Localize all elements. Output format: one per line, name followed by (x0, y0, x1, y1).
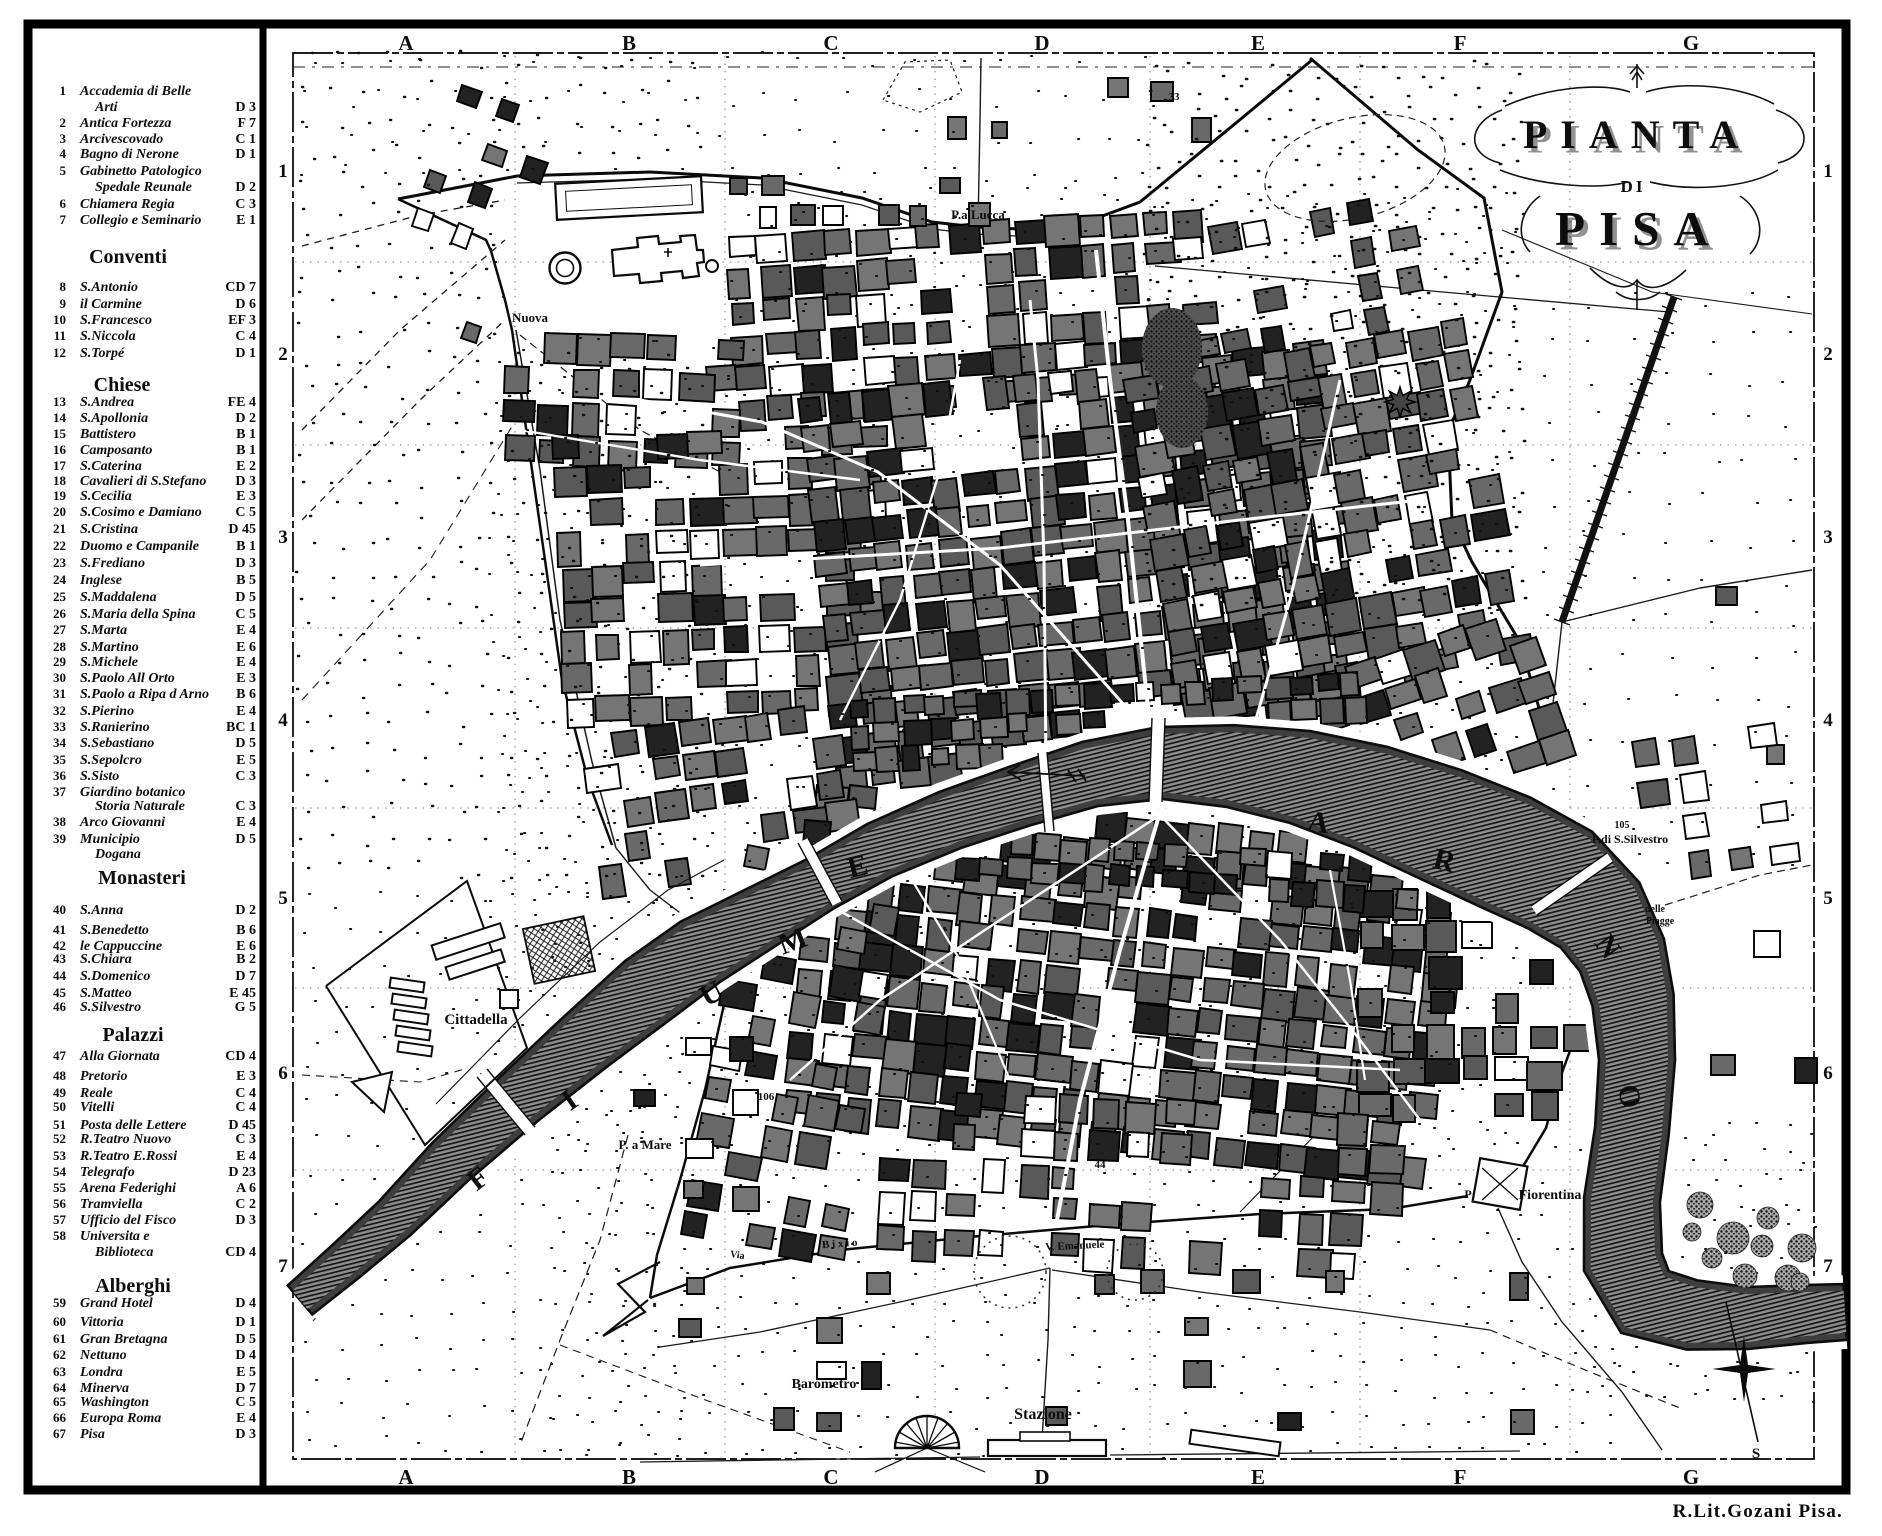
svg-text:D: D (1034, 1465, 1049, 1489)
svg-text:Antica Fortezza: Antica Fortezza (79, 116, 171, 131)
svg-text:E 6: E 6 (236, 640, 256, 655)
svg-text:Vitelli: Vitelli (80, 1100, 114, 1115)
svg-text:P.a Lucca: P.a Lucca (951, 207, 1005, 222)
svg-text:C 3: C 3 (235, 769, 256, 784)
svg-text:Biblioteca: Biblioteca (94, 1245, 153, 1260)
svg-text:28: 28 (53, 639, 67, 654)
svg-text:D 2: D 2 (235, 411, 256, 426)
svg-text:4: 4 (60, 146, 67, 161)
svg-text:14: 14 (53, 410, 67, 425)
svg-text:F: F (1454, 31, 1467, 55)
svg-text:C 4: C 4 (235, 329, 256, 344)
svg-text:S.Maddalena: S.Maddalena (80, 590, 157, 605)
svg-text:13: 13 (53, 394, 67, 409)
svg-text:52: 52 (53, 1131, 66, 1146)
svg-text:Arena Federighi: Arena Federighi (79, 1181, 176, 1196)
svg-text:Cavalieri di S.Stefano: Cavalieri di S.Stefano (80, 474, 206, 489)
svg-text:D 5: D 5 (235, 1332, 256, 1347)
svg-text:Alla Giornata: Alla Giornata (79, 1049, 160, 1064)
svg-text:S.Sisto: S.Sisto (80, 769, 119, 784)
svg-text:Stazione: Stazione (1014, 1406, 1072, 1423)
svg-text:25: 25 (53, 589, 67, 604)
svg-text:Bagno di Nerone: Bagno di Nerone (79, 147, 179, 162)
svg-text:17: 17 (53, 458, 67, 473)
svg-text:67: 67 (53, 1426, 67, 1441)
svg-text:5: 5 (60, 163, 67, 178)
svg-text:Europa Roma: Europa Roma (79, 1411, 161, 1426)
svg-text:9: 9 (60, 296, 67, 311)
svg-text:D 6: D 6 (235, 297, 256, 312)
svg-text:S.Domenico: S.Domenico (80, 969, 150, 984)
svg-text:106: 106 (758, 1091, 775, 1103)
svg-text:Accademia di Belle: Accademia di Belle (79, 84, 191, 99)
svg-text:56: 56 (53, 1196, 67, 1211)
svg-text:60: 60 (53, 1314, 66, 1329)
svg-text:20: 20 (53, 504, 66, 519)
svg-text:S.Ranierino: S.Ranierino (80, 720, 150, 735)
svg-text:7: 7 (278, 1256, 288, 1277)
svg-text:7: 7 (1823, 1256, 1833, 1277)
svg-text:Londra: Londra (79, 1365, 123, 1380)
svg-text:Palazzi: Palazzi (102, 1024, 164, 1046)
svg-text:57: 57 (53, 1212, 67, 1227)
svg-text:G 5: G 5 (235, 1000, 256, 1015)
svg-text:S.Silvestro: S.Silvestro (80, 1000, 141, 1015)
svg-text:Washington: Washington (80, 1395, 149, 1410)
svg-text:3: 3 (278, 527, 288, 548)
svg-text:Spedale Reunale: Spedale Reunale (95, 180, 192, 195)
svg-text:S.Anna: S.Anna (80, 903, 123, 918)
svg-text:6: 6 (1823, 1063, 1833, 1084)
svg-text:55: 55 (53, 1180, 67, 1195)
svg-text:B 1: B 1 (236, 443, 256, 458)
svg-text:S.Niccola: S.Niccola (80, 329, 136, 344)
svg-text:S.Paolo All Orto: S.Paolo All Orto (80, 671, 175, 686)
svg-text:R.Teatro E.Rossi: R.Teatro E.Rossi (79, 1149, 177, 1164)
svg-text:E 3: E 3 (236, 489, 256, 504)
svg-text:54: 54 (53, 1164, 67, 1179)
svg-text:P:: P: (1464, 1187, 1475, 1201)
svg-text:Chiese: Chiese (94, 374, 151, 396)
svg-text:S.Martino: S.Martino (80, 640, 139, 655)
svg-text:5: 5 (278, 888, 288, 909)
svg-text:3: 3 (1823, 527, 1833, 548)
svg-text:CD 4: CD 4 (225, 1245, 256, 1260)
svg-text:C: C (823, 1465, 838, 1489)
svg-text:B i x i o: B i x i o (822, 1237, 859, 1251)
svg-text:Gran Bretagna: Gran Bretagna (80, 1332, 168, 1347)
svg-text:B: B (622, 31, 636, 55)
svg-text:C 1: C 1 (235, 132, 256, 147)
svg-text:63: 63 (53, 1364, 67, 1379)
svg-text:59: 59 (53, 1295, 67, 1310)
svg-text:Dogana: Dogana (94, 847, 141, 862)
svg-text:Conventi: Conventi (89, 246, 167, 268)
svg-text:58: 58 (53, 1228, 67, 1243)
svg-text:66: 66 (53, 1410, 67, 1425)
svg-text:Alberghi: Alberghi (95, 1275, 171, 1297)
svg-text:Nettuno: Nettuno (79, 1348, 127, 1363)
svg-text:il Carmine: il Carmine (80, 297, 142, 312)
svg-text:51: 51 (53, 1117, 66, 1132)
svg-text:EF 3: EF 3 (228, 313, 256, 328)
svg-text:E 4: E 4 (236, 655, 256, 670)
svg-text:Inglese: Inglese (79, 573, 122, 588)
svg-text:12: 12 (53, 345, 66, 360)
svg-text:R.Lit.Gozani Pisa.: R.Lit.Gozani Pisa. (1673, 1501, 1843, 1522)
svg-text:Gabinetto Patologico: Gabinetto Patologico (80, 164, 202, 179)
svg-text:Giardino botanico: Giardino botanico (80, 785, 185, 800)
svg-text:53: 53 (53, 1148, 67, 1163)
svg-text:Nuova: Nuova (512, 310, 549, 325)
svg-text:D 5: D 5 (235, 590, 256, 605)
svg-text:24: 24 (53, 572, 67, 587)
svg-text:18: 18 (53, 473, 67, 488)
svg-text:30: 30 (53, 670, 66, 685)
svg-text:4: 4 (278, 710, 288, 731)
svg-text:Grand Hotel: Grand Hotel (80, 1296, 153, 1311)
svg-text:2: 2 (278, 344, 288, 365)
svg-text:Arcivescovado: Arcivescovado (79, 132, 163, 147)
svg-text:D 1: D 1 (235, 346, 256, 361)
svg-text:S.Cristina: S.Cristina (80, 522, 138, 537)
svg-text:D 3: D 3 (235, 1213, 256, 1228)
svg-text:40: 40 (53, 902, 66, 917)
svg-text:S.Francesco: S.Francesco (80, 313, 152, 328)
svg-text:S.Maria della Spina: S.Maria della Spina (80, 607, 196, 622)
svg-text:D 3: D 3 (235, 100, 256, 115)
svg-text:Pretorio: Pretorio (80, 1069, 127, 1084)
svg-text:A: A (398, 1465, 414, 1489)
svg-text:CD 7: CD 7 (225, 280, 256, 295)
svg-text:Municipio: Municipio (79, 832, 140, 847)
svg-text:Pisa: Pisa (80, 1427, 105, 1442)
svg-text:49: 49 (53, 1085, 67, 1100)
svg-text:64: 64 (53, 1380, 67, 1395)
svg-text:Universita e: Universita e (80, 1229, 150, 1244)
svg-text:S.Antonio: S.Antonio (80, 280, 138, 295)
svg-text:D 7: D 7 (235, 969, 256, 984)
svg-text:S.Caterina: S.Caterina (80, 459, 142, 474)
svg-text:G: G (1683, 31, 1699, 55)
svg-text:S.Benedetto: S.Benedetto (80, 923, 149, 938)
svg-text:S.Pierino: S.Pierino (80, 704, 134, 719)
svg-text:105: 105 (1615, 820, 1630, 831)
svg-text:delle: delle (1645, 904, 1666, 915)
svg-text:C: C (823, 31, 838, 55)
svg-text:D 3: D 3 (235, 1427, 256, 1442)
svg-text:S.Torpé: S.Torpé (80, 346, 125, 361)
svg-text:Chiamera Regia: Chiamera Regia (80, 197, 175, 212)
svg-text:1: 1 (1823, 161, 1833, 182)
svg-text:Reale: Reale (79, 1086, 113, 1101)
svg-text:Monasteri: Monasteri (98, 867, 186, 889)
svg-text:4: 4 (1823, 710, 1833, 731)
svg-text:S.Paolo a Ripa d Arno: S.Paolo a Ripa d Arno (80, 687, 209, 702)
svg-text:E 5: E 5 (236, 1365, 256, 1380)
svg-text:C 2: C 2 (235, 1197, 256, 1212)
svg-text:B 6: B 6 (236, 687, 256, 702)
svg-text:D 2: D 2 (235, 180, 256, 195)
svg-text:B 6: B 6 (236, 923, 256, 938)
svg-text:6: 6 (278, 1063, 288, 1084)
svg-text:E 45: E 45 (229, 986, 256, 1001)
svg-text:2: 2 (1823, 344, 1833, 365)
svg-text:P. a Mare: P. a Mare (618, 1137, 671, 1152)
svg-text:Battistero: Battistero (79, 427, 136, 442)
svg-text:Duomo e Campanile: Duomo e Campanile (79, 539, 199, 554)
svg-text:B 5: B 5 (236, 573, 256, 588)
svg-text:Arti: Arti (94, 100, 118, 115)
svg-text:23: 23 (53, 555, 67, 570)
svg-text:65: 65 (53, 1394, 67, 1409)
svg-text:S.Apollonia: S.Apollonia (80, 411, 148, 426)
svg-text:R.Teatro Nuovo: R.Teatro Nuovo (79, 1132, 171, 1147)
svg-text:D: D (1034, 31, 1049, 55)
svg-text:S.Chiara: S.Chiara (80, 952, 132, 967)
svg-text:19: 19 (53, 488, 67, 503)
svg-text:5: 5 (1823, 888, 1833, 909)
svg-text:D 1: D 1 (235, 147, 256, 162)
svg-text:D 2: D 2 (235, 903, 256, 918)
svg-text:Barometro: Barometro (792, 1377, 857, 1392)
svg-text:E 4: E 4 (236, 1411, 256, 1426)
svg-text:Tramviella: Tramviella (80, 1197, 142, 1212)
svg-text:C 5: C 5 (235, 505, 256, 520)
svg-text:S.Cosimo e Damiano: S.Cosimo e Damiano (80, 505, 202, 520)
svg-text:38: 38 (53, 814, 67, 829)
svg-text:22: 22 (53, 538, 66, 553)
svg-text:E: E (1251, 31, 1265, 55)
svg-text:C 3: C 3 (235, 1132, 256, 1147)
svg-text:D 45: D 45 (228, 1118, 256, 1133)
svg-text:41: 41 (53, 922, 66, 937)
svg-text:50: 50 (53, 1099, 66, 1114)
svg-text:21: 21 (53, 521, 66, 536)
svg-text:Piagge: Piagge (1646, 916, 1675, 927)
svg-text:S.Sebastiano: S.Sebastiano (80, 736, 154, 751)
svg-text:C 3: C 3 (235, 799, 256, 814)
svg-text:48: 48 (53, 1068, 67, 1083)
svg-text:31: 31 (53, 686, 66, 701)
svg-text:16: 16 (53, 442, 67, 457)
svg-text:E 4: E 4 (236, 815, 256, 830)
svg-text:E 3: E 3 (236, 671, 256, 686)
svg-text:F 7: F 7 (237, 116, 256, 131)
svg-text:E 2: E 2 (236, 459, 256, 474)
svg-text:33: 33 (1169, 91, 1181, 103)
svg-text:D 5: D 5 (235, 832, 256, 847)
svg-text:E 4: E 4 (236, 704, 256, 719)
svg-text:6: 6 (60, 196, 67, 211)
svg-text:A: A (398, 31, 414, 55)
svg-text:62: 62 (53, 1347, 66, 1362)
svg-text:C 5: C 5 (235, 607, 256, 622)
svg-text:E 4: E 4 (236, 623, 256, 638)
svg-text:Arco Giovanni: Arco Giovanni (79, 815, 165, 830)
svg-text:E 1: E 1 (236, 213, 256, 228)
svg-text:G: G (1683, 1465, 1699, 1489)
svg-text:Minerva: Minerva (79, 1381, 129, 1396)
svg-text:Cittadella: Cittadella (444, 1012, 508, 1028)
svg-text:15: 15 (53, 426, 67, 441)
svg-text:FE 4: FE 4 (228, 395, 256, 410)
svg-text:PISA: PISA (1555, 201, 1723, 256)
svg-text:D 3: D 3 (235, 474, 256, 489)
svg-text:10: 10 (53, 312, 66, 327)
svg-text:P.di S.Silvestro: P.di S.Silvestro (1592, 832, 1668, 846)
svg-text:D 5: D 5 (235, 736, 256, 751)
svg-text:39: 39 (53, 831, 67, 846)
svg-text:B 1: B 1 (236, 539, 256, 554)
svg-text:S.Sepolcro: S.Sepolcro (80, 753, 142, 768)
svg-text:B 1: B 1 (236, 427, 256, 442)
svg-text:1: 1 (278, 161, 288, 182)
svg-text:D 1: D 1 (235, 1315, 256, 1330)
svg-text:D 3: D 3 (235, 556, 256, 571)
svg-text:46: 46 (53, 999, 67, 1014)
svg-text:Via: Via (729, 1249, 745, 1262)
svg-text:PIANTA: PIANTA (1523, 112, 1751, 157)
svg-text:F: F (1454, 1465, 1467, 1489)
svg-text:B: B (622, 1465, 636, 1489)
svg-text:D 45: D 45 (228, 522, 256, 537)
svg-text:S: S (1752, 1446, 1760, 1462)
svg-text:D 4: D 4 (235, 1348, 256, 1363)
svg-text:44: 44 (1095, 1159, 1107, 1171)
svg-text:S.Frediano: S.Frediano (80, 556, 145, 571)
svg-text:26: 26 (53, 606, 67, 621)
svg-text:29: 29 (53, 654, 67, 669)
svg-text:S.Cecilia: S.Cecilia (80, 489, 132, 504)
svg-text:D 7: D 7 (235, 1381, 256, 1396)
svg-text:Camposanto: Camposanto (80, 443, 152, 458)
svg-text:C 3: C 3 (235, 197, 256, 212)
svg-text:E: E (1251, 1465, 1265, 1489)
svg-text:43: 43 (53, 951, 67, 966)
svg-text:35: 35 (53, 752, 67, 767)
svg-text:B 2: B 2 (236, 952, 256, 967)
svg-text:S.Andrea: S.Andrea (80, 395, 134, 410)
svg-text:36: 36 (53, 768, 67, 783)
svg-text:D 4: D 4 (235, 1296, 256, 1311)
svg-text:D 23: D 23 (228, 1165, 256, 1180)
svg-text:8: 8 (60, 279, 67, 294)
svg-text:C 4: C 4 (235, 1086, 256, 1101)
svg-text:45: 45 (53, 985, 67, 1000)
svg-text:34: 34 (53, 735, 67, 750)
svg-text:DI: DI (1621, 177, 1646, 196)
svg-text:11: 11 (54, 328, 66, 343)
svg-text:A 6: A 6 (236, 1181, 256, 1196)
svg-text:E 4: E 4 (236, 1149, 256, 1164)
svg-text:S.Matteo: S.Matteo (80, 986, 132, 1001)
svg-text:32: 32 (53, 703, 66, 718)
svg-text:33: 33 (53, 719, 67, 734)
svg-text:C 4: C 4 (235, 1100, 256, 1115)
svg-text:Posta delle Lettere: Posta delle Lettere (80, 1118, 187, 1133)
svg-text:E 3: E 3 (236, 1069, 256, 1084)
svg-text:Telegrafo: Telegrafo (80, 1165, 135, 1180)
svg-text:Vittoria: Vittoria (80, 1315, 124, 1330)
svg-text:S.Marta: S.Marta (80, 623, 127, 638)
svg-text:3: 3 (60, 131, 67, 146)
svg-text:47: 47 (53, 1048, 67, 1063)
svg-text:61: 61 (53, 1331, 66, 1346)
svg-text:7: 7 (60, 212, 67, 227)
svg-text:E 5: E 5 (236, 753, 256, 768)
svg-text:Fiorentina: Fiorentina (1519, 1188, 1582, 1203)
svg-text:1: 1 (60, 83, 67, 98)
svg-text:Collegio e Seminario: Collegio e Seminario (80, 213, 201, 228)
svg-text:2: 2 (60, 115, 67, 130)
svg-text:37: 37 (53, 784, 67, 799)
svg-text:Storia Naturale: Storia Naturale (95, 799, 185, 814)
svg-text:44: 44 (53, 968, 67, 983)
svg-text:27: 27 (53, 622, 67, 637)
svg-text:BC 1: BC 1 (226, 720, 256, 735)
svg-text:Ufficio del Fisco: Ufficio del Fisco (80, 1213, 176, 1228)
svg-text:S.Michele: S.Michele (80, 655, 138, 670)
svg-text:CD 4: CD 4 (225, 1049, 256, 1064)
svg-text:C 5: C 5 (235, 1395, 256, 1410)
